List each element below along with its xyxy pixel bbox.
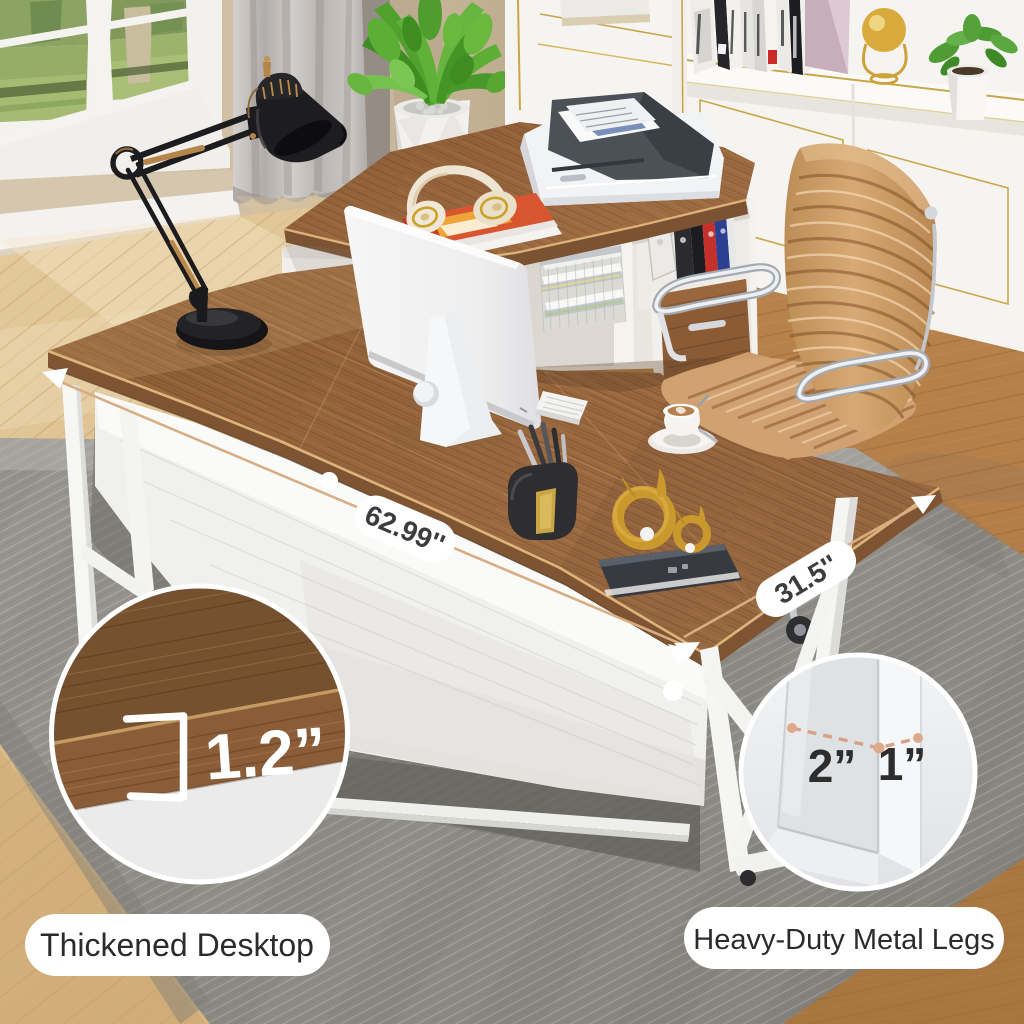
svg-text:Thickened Desktop: Thickened Desktop — [40, 927, 314, 963]
svg-text:1.2”: 1.2” — [203, 713, 329, 793]
svg-text:2”: 2” — [808, 740, 857, 792]
svg-text:1”: 1” — [878, 738, 927, 790]
svg-text:Heavy-Duty Metal Legs: Heavy-Duty Metal Legs — [693, 924, 994, 956]
